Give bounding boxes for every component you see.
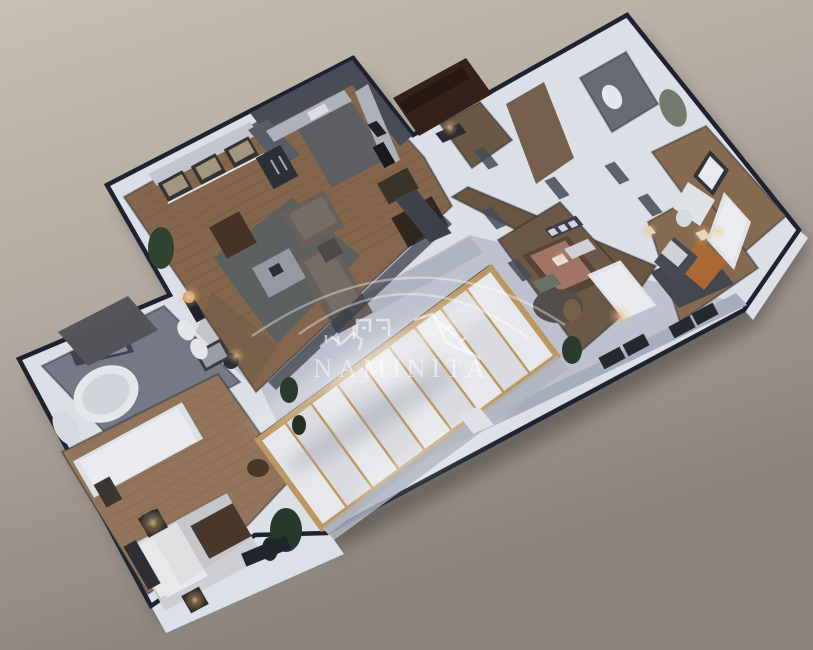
svg-text:NAMINITA: NAMINITA bbox=[313, 354, 490, 383]
